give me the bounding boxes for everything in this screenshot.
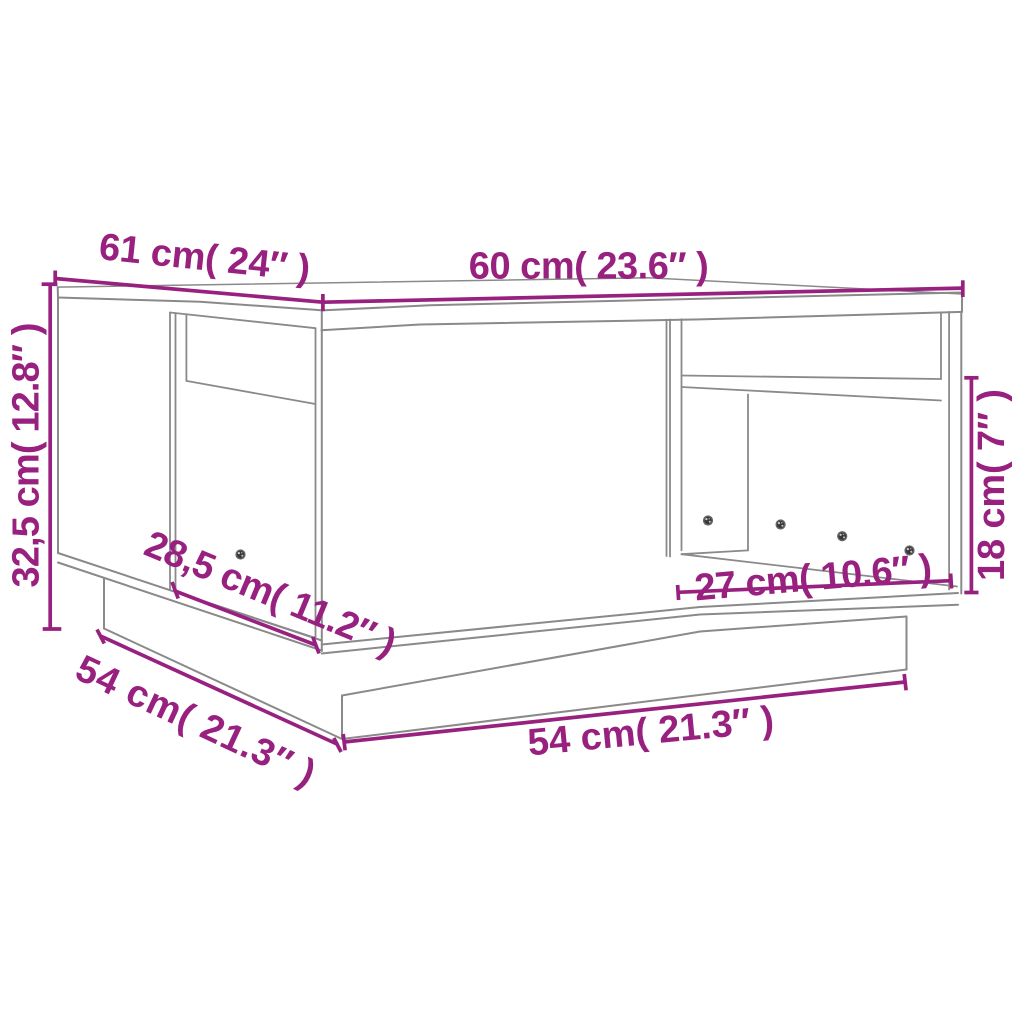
svg-text:60 cm( 23.6″ ): 60 cm( 23.6″ )	[469, 246, 709, 288]
svg-text:32,5 cm( 12.8″ ): 32,5 cm( 12.8″ )	[6, 323, 48, 588]
svg-text:18 cm( 7″ ): 18 cm( 7″ )	[971, 389, 1013, 581]
